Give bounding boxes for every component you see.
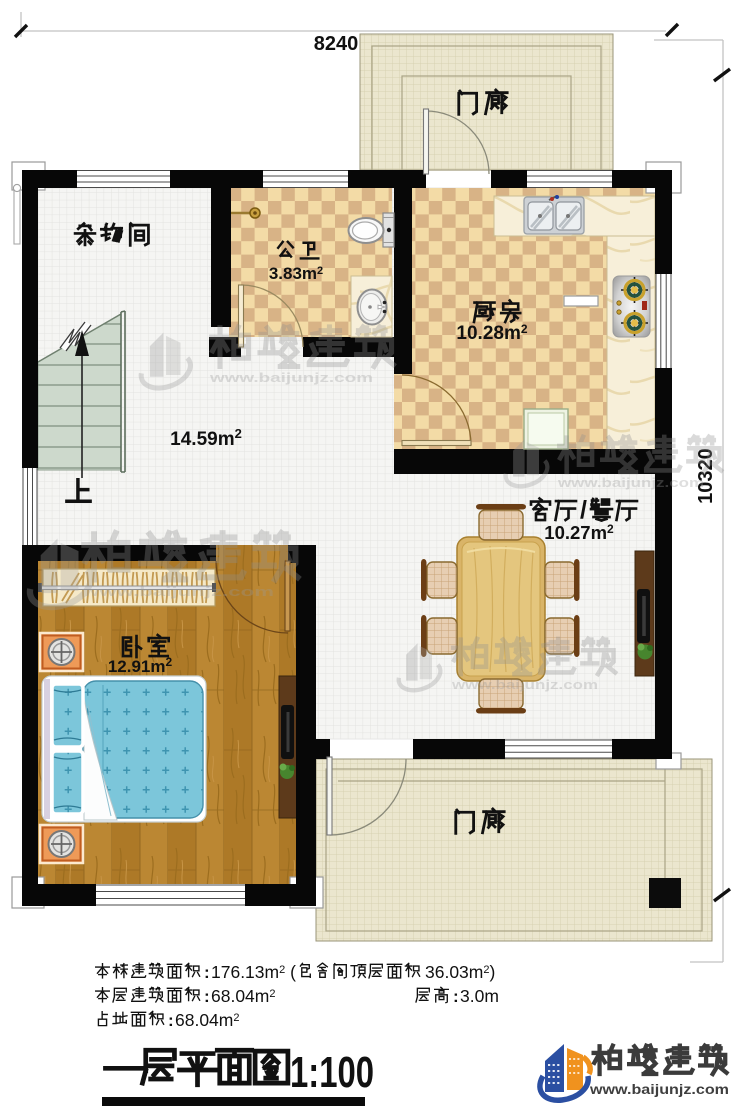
svg-text:www.baijunjz.com: www.baijunjz.com xyxy=(451,677,598,692)
svg-text::: : xyxy=(204,963,210,982)
svg-text:www.baijunjz.com: www.baijunjz.com xyxy=(80,584,274,599)
svg-text:www.baijunjz.com: www.baijunjz.com xyxy=(589,1081,729,1097)
svg-text::: : xyxy=(453,987,459,1006)
svg-text::: : xyxy=(204,987,210,1006)
svg-text::: : xyxy=(168,1011,174,1030)
svg-text:www.baijunjz.com: www.baijunjz.com xyxy=(209,370,373,385)
svg-text:/: / xyxy=(580,496,587,524)
svg-text:14.59m2: 14.59m2 xyxy=(170,426,242,450)
svg-text:1:100: 1:100 xyxy=(290,1048,374,1097)
svg-text:12.91m2: 12.91m2 xyxy=(108,655,173,676)
svg-text:68.04m2: 68.04m2 xyxy=(175,1010,240,1030)
svg-text:68.04m2: 68.04m2 xyxy=(211,986,276,1006)
svg-text:8240: 8240 xyxy=(314,33,359,55)
svg-text:www.baijunjz.com: www.baijunjz.com xyxy=(557,475,704,490)
svg-text:10.27m2: 10.27m2 xyxy=(544,522,614,543)
svg-text:3.83m2: 3.83m2 xyxy=(269,264,323,283)
svg-text:10.28m2: 10.28m2 xyxy=(456,322,527,344)
svg-text:3.0m: 3.0m xyxy=(460,986,499,1006)
